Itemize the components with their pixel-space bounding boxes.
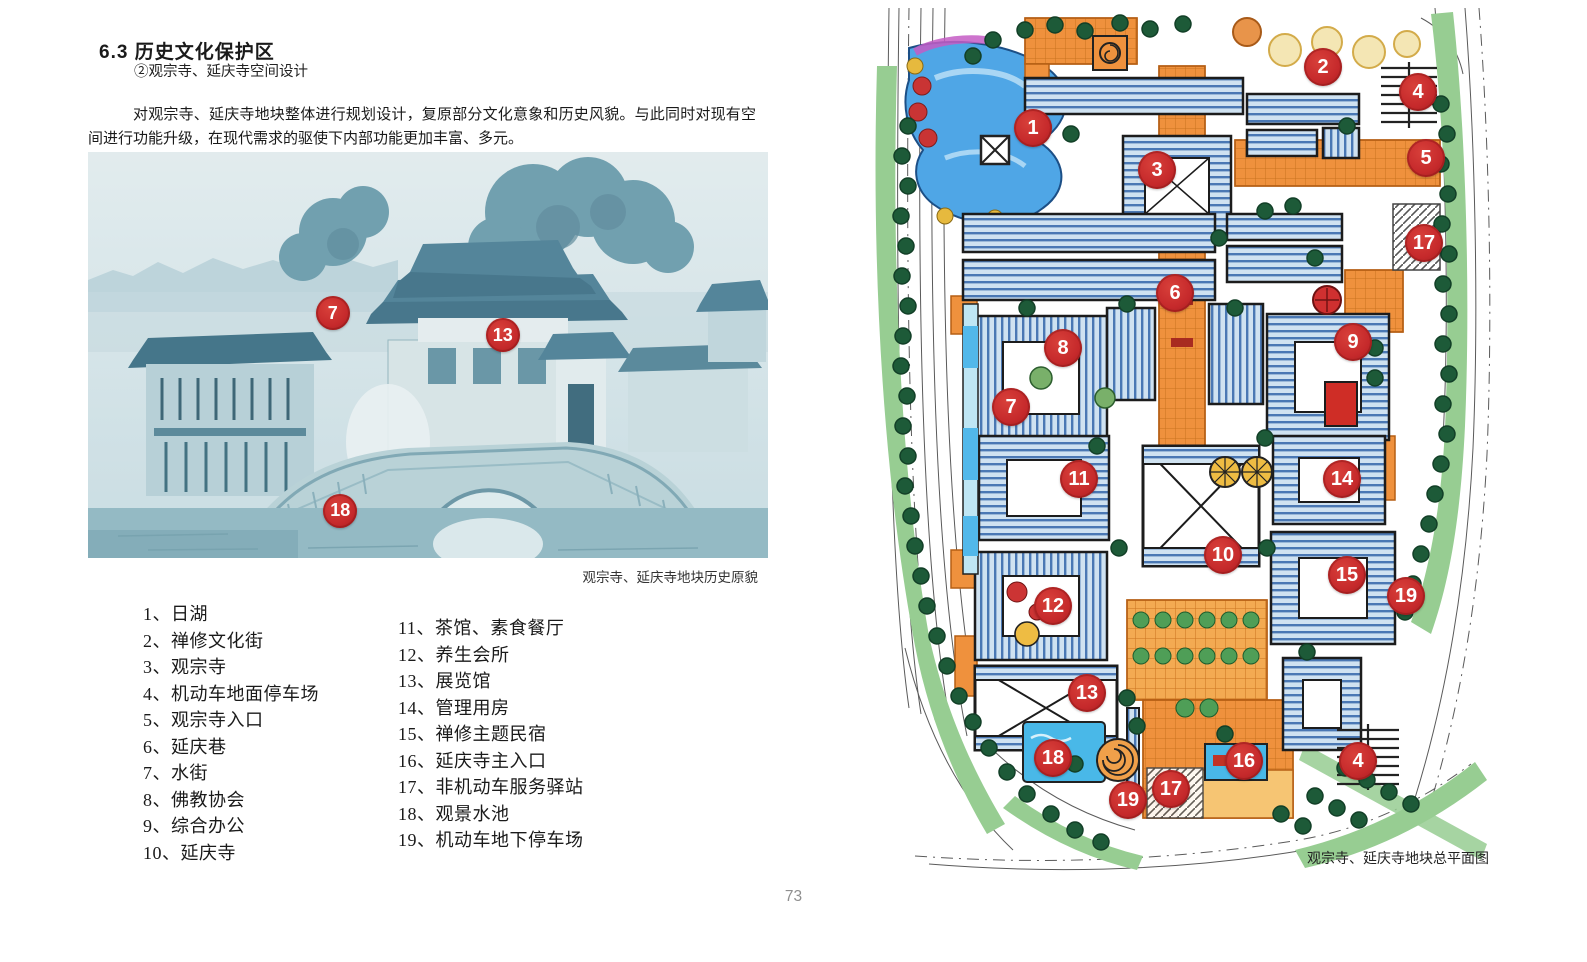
legend-list-right: 11、茶馆、素食餐厅12、养生会所13、展览馆14、管理用房15、禅修主题民宿1…: [398, 601, 584, 866]
map-marker-10: 10: [1204, 536, 1242, 574]
legend-item: 2、禅修文化街: [143, 628, 398, 655]
legend-item: 10、延庆寺: [143, 840, 398, 867]
map-marker-16: 16: [1225, 742, 1263, 780]
photo-marker-18: 18: [323, 494, 357, 528]
legend-item: 17、非机动车服务驿站: [398, 774, 584, 801]
legend-item: 1、日湖: [143, 601, 398, 628]
legend-item: 6、延庆巷: [143, 734, 398, 761]
legend-item: 5、观宗寺入口: [143, 707, 398, 734]
map-marker-13: 13: [1068, 674, 1106, 712]
map-marker-11: 11: [1060, 460, 1098, 498]
photo-markers-layer: 71318: [88, 152, 768, 558]
map-marker-7: 7: [992, 388, 1030, 426]
legend-item: 3、观宗寺: [143, 654, 398, 681]
subsection-title: ②观宗寺、延庆寺空间设计: [134, 60, 308, 81]
document-page: 6.3 历史文化保护区 ②观宗寺、延庆寺空间设计 对观宗寺、延庆寺地块整体进行规…: [0, 0, 1587, 962]
legend-item: 16、延庆寺主入口: [398, 748, 584, 775]
legend-item: 4、机动车地面停车场: [143, 681, 398, 708]
map-marker-18: 18: [1034, 739, 1072, 777]
legend: 1、日湖2、禅修文化街3、观宗寺4、机动车地面停车场5、观宗寺入口6、延庆巷7、…: [143, 601, 584, 866]
map-marker-8: 8: [1044, 329, 1082, 367]
legend-item: 18、观景水池: [398, 801, 584, 828]
map-marker-4: 4: [1339, 742, 1377, 780]
map-marker-17: 17: [1405, 224, 1443, 262]
master-plan: 1234517689711141015191213181641719 观宗寺、延…: [875, 8, 1495, 873]
map-marker-2: 2: [1304, 48, 1342, 86]
legend-item: 8、佛教协会: [143, 787, 398, 814]
historical-photo: 71318: [88, 152, 768, 558]
legend-item: 12、养生会所: [398, 642, 584, 669]
photo-marker-13: 13: [486, 318, 520, 352]
map-marker-19: 19: [1387, 577, 1425, 615]
legend-item: 7、水街: [143, 760, 398, 787]
photo-caption: 观宗寺、延庆寺地块历史原貌: [88, 566, 758, 586]
legend-item: 13、展览馆: [398, 668, 584, 695]
map-marker-1: 1: [1014, 109, 1052, 147]
legend-item: 14、管理用房: [398, 695, 584, 722]
map-marker-6: 6: [1156, 274, 1194, 312]
map-marker-5: 5: [1407, 139, 1445, 177]
map-marker-9: 9: [1334, 323, 1372, 361]
map-markers-layer: 1234517689711141015191213181641719: [875, 8, 1495, 873]
map-marker-12: 12: [1034, 587, 1072, 625]
legend-item: 15、禅修主题民宿: [398, 721, 584, 748]
map-caption: 观宗寺、延庆寺地块总平面图: [1307, 848, 1489, 868]
map-marker-17: 17: [1152, 770, 1190, 808]
legend-list-left: 1、日湖2、禅修文化街3、观宗寺4、机动车地面停车场5、观宗寺入口6、延庆巷7、…: [143, 601, 398, 866]
map-marker-4: 4: [1399, 73, 1437, 111]
legend-item: 11、茶馆、素食餐厅: [398, 615, 584, 642]
legend-item: 9、综合办公: [143, 813, 398, 840]
map-marker-3: 3: [1138, 151, 1176, 189]
map-marker-19: 19: [1109, 781, 1147, 819]
photo-marker-7: 7: [316, 296, 350, 330]
page-number: 73: [0, 888, 1587, 906]
intro-paragraph: 对观宗寺、延庆寺地块整体进行规划设计，复原部分文化意象和历史风貌。与此同时对现有…: [88, 103, 756, 151]
legend-item: 19、机动车地下停车场: [398, 827, 584, 854]
map-marker-14: 14: [1323, 460, 1361, 498]
map-marker-15: 15: [1328, 556, 1366, 594]
